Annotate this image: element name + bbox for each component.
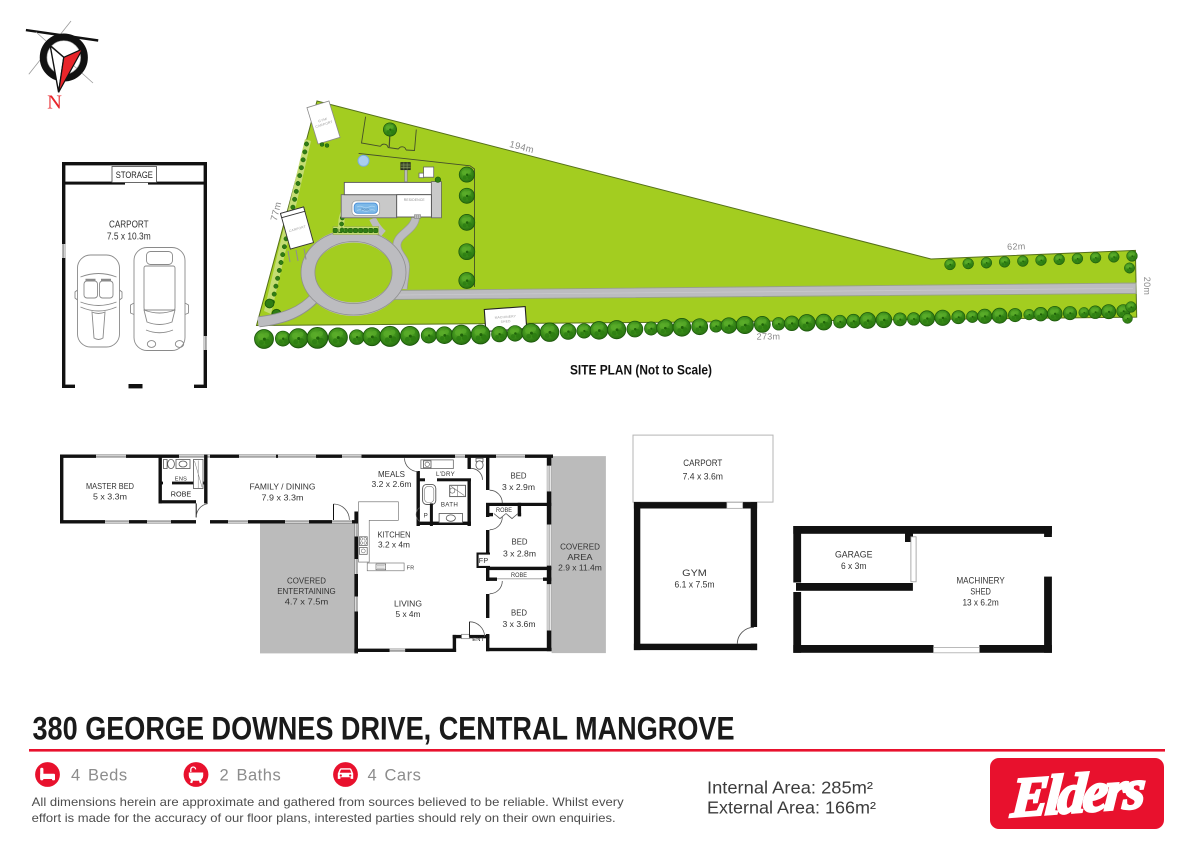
svg-text:7.4 x 3.6m: 7.4 x 3.6m xyxy=(683,472,723,483)
svg-text:SHED: SHED xyxy=(970,587,991,598)
svg-text:MASTER BED: MASTER BED xyxy=(86,481,134,491)
svg-text:BED: BED xyxy=(512,537,528,547)
svg-text:ROBE: ROBE xyxy=(511,572,527,579)
svg-text:Internal Area: 285m²: Internal Area: 285m² xyxy=(707,778,873,798)
svg-text:5 x 4m: 5 x 4m xyxy=(396,609,421,619)
svg-text:GYM: GYM xyxy=(682,568,707,579)
svg-text:ENS: ENS xyxy=(175,477,187,483)
svg-text:BED: BED xyxy=(511,471,527,481)
svg-text:6 x 3m: 6 x 3m xyxy=(841,561,866,572)
svg-text:STORAGE: STORAGE xyxy=(116,170,153,180)
svg-text:BATH: BATH xyxy=(441,501,458,508)
svg-text:6.1 x 7.5m: 6.1 x 7.5m xyxy=(674,580,714,591)
svg-text:ROBE: ROBE xyxy=(496,507,512,514)
svg-text:4.7 x 7.5m: 4.7 x 7.5m xyxy=(285,597,329,607)
svg-text:MEALS: MEALS xyxy=(378,469,405,479)
svg-text:3 x 2.8m: 3 x 2.8m xyxy=(503,549,536,559)
svg-text:Beds: Beds xyxy=(88,767,128,785)
svg-text:Baths: Baths xyxy=(237,767,282,785)
svg-text:SITE PLAN (Not to Scale): SITE PLAN (Not to Scale) xyxy=(570,363,712,378)
svg-text:AREA: AREA xyxy=(567,552,592,562)
svg-text:3 x 2.9m: 3 x 2.9m xyxy=(502,482,535,492)
svg-text:RESIDENCE: RESIDENCE xyxy=(404,198,426,202)
svg-text:GARAGE: GARAGE xyxy=(835,550,873,561)
svg-text:BED: BED xyxy=(511,608,527,618)
svg-text:L'DRY: L'DRY xyxy=(436,471,455,478)
svg-text:3.2 x 2.6m: 3.2 x 2.6m xyxy=(372,479,412,489)
svg-text:N: N xyxy=(47,92,62,114)
svg-text:FR: FR xyxy=(407,566,415,572)
svg-text:ROBE: ROBE xyxy=(171,490,191,499)
svg-text:5 x 3.3m: 5 x 3.3m xyxy=(93,492,127,502)
svg-text:Cars: Cars xyxy=(385,767,422,785)
svg-text:2.9 x 11.4m: 2.9 x 11.4m xyxy=(558,563,602,573)
svg-text:7.9 x 3.3m: 7.9 x 3.3m xyxy=(262,493,304,503)
svg-text:CARPORT: CARPORT xyxy=(109,220,149,231)
svg-text:7.5 x 10.3m: 7.5 x 10.3m xyxy=(107,232,151,243)
svg-text:ENT: ENT xyxy=(472,637,484,643)
svg-text:COVERED: COVERED xyxy=(560,542,600,552)
svg-text:Elders: Elders xyxy=(1008,758,1146,830)
svg-text:KITCHEN: KITCHEN xyxy=(378,530,411,540)
svg-text:External Area: 166m²: External Area: 166m² xyxy=(707,798,876,818)
svg-text:20m: 20m xyxy=(1142,277,1152,295)
svg-text:62m: 62m xyxy=(1007,241,1026,252)
svg-text:CARPORT: CARPORT xyxy=(683,458,722,469)
svg-text:3 x 3.6m: 3 x 3.6m xyxy=(503,619,536,629)
svg-text:4: 4 xyxy=(368,767,378,785)
svg-text:All dimensions herein are appr: All dimensions herein are approximate an… xyxy=(32,795,624,809)
svg-text:P: P xyxy=(424,512,428,519)
svg-text:380 GEORGE DOWNES DRIVE, CENTR: 380 GEORGE DOWNES DRIVE, CENTRAL MANGROV… xyxy=(33,711,735,747)
svg-text:effort is made for the accurac: effort is made for the accuracy of our f… xyxy=(32,811,616,825)
svg-text:273m: 273m xyxy=(757,331,781,341)
svg-text:13 x 6.2m: 13 x 6.2m xyxy=(962,598,998,609)
svg-text:4: 4 xyxy=(71,767,81,785)
svg-text:COVERED: COVERED xyxy=(287,576,326,586)
svg-text:ENTERTAINING: ENTERTAINING xyxy=(277,586,336,596)
svg-text:MACHINERY: MACHINERY xyxy=(956,576,1005,587)
svg-text:LIVING: LIVING xyxy=(394,599,422,609)
svg-text:POOL: POOL xyxy=(361,207,370,211)
svg-text:3.2 x 4m: 3.2 x 4m xyxy=(378,540,410,550)
svg-text:2: 2 xyxy=(220,767,230,785)
svg-text:FP: FP xyxy=(479,556,489,565)
svg-text:SHED: SHED xyxy=(501,319,512,324)
svg-text:FAMILY / DINING: FAMILY / DINING xyxy=(250,482,316,492)
